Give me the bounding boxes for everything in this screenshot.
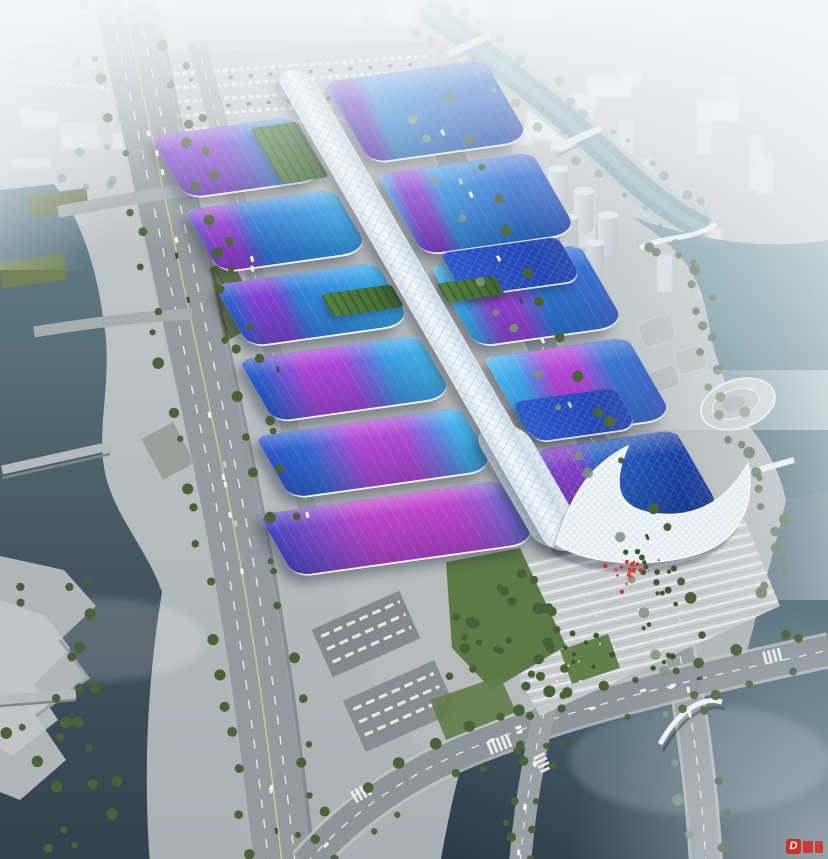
east-exhibition-hall-1 bbox=[324, 60, 532, 165]
west-exhibition-hall-2 bbox=[184, 189, 370, 273]
watermark-icon: D bbox=[786, 839, 801, 854]
west-exhibition-hall-4 bbox=[239, 335, 455, 423]
watermark-glyph-1 bbox=[803, 841, 813, 853]
watermark-logo: D bbox=[786, 839, 823, 854]
watermark-glyph-2 bbox=[815, 841, 823, 853]
aerial-rendering: D bbox=[0, 0, 828, 859]
